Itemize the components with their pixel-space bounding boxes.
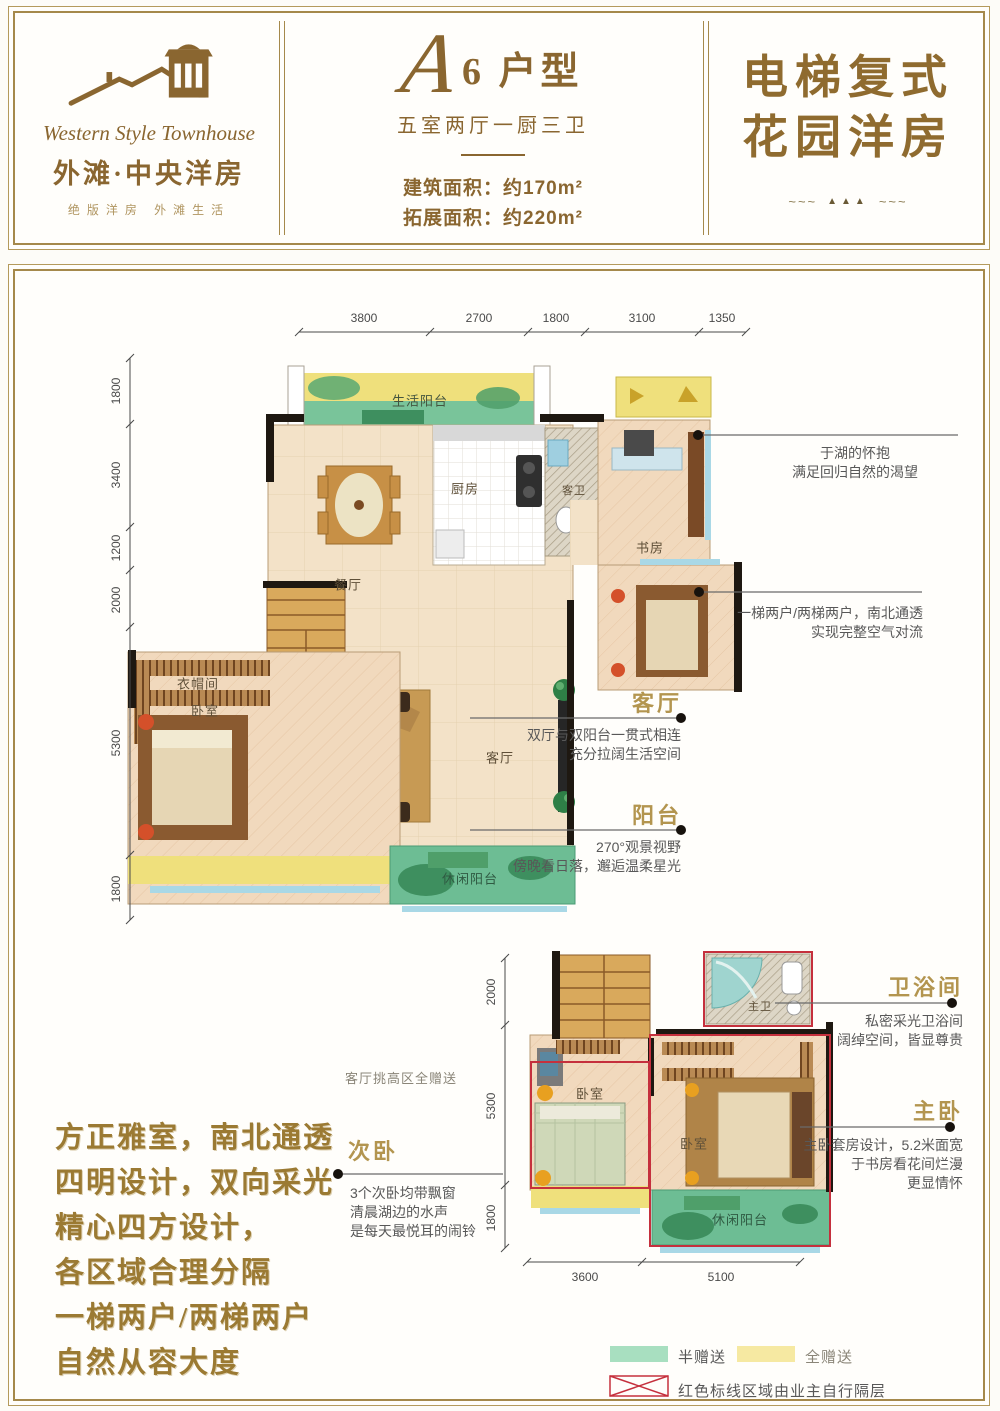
room-label-living: 客厅 — [486, 748, 514, 767]
dim-top-3800: 3800 — [351, 311, 378, 325]
slogan-line4: 各区域合理分隔 — [55, 1251, 334, 1296]
legend-red-label: 红色标线区域由业主自行隔层 — [678, 1380, 886, 1401]
room-label-cloakroom: 衣帽间 — [177, 674, 219, 693]
annotation-secondary: 3个次卧均带飘窗 清晨湖边的水声 是每天最悦耳的闹铃 — [350, 1184, 476, 1241]
annotation-master-title: 主卧 — [913, 1094, 963, 1126]
annotation-living-line2: 充分拉阔生活空间 — [527, 745, 681, 764]
annotation-secondary-line2: 清晨湖边的水声 — [350, 1203, 476, 1222]
annotation-vent-line2: 实现完整空气对流 — [688, 623, 923, 642]
annotation-vent: 一梯两户/两梯两户，南北通透 实现完整空气对流 — [688, 604, 923, 642]
dim-top-1800: 1800 — [543, 311, 570, 325]
annotation-master-line1: 主卧套房设计，5.2米面宽 — [804, 1136, 963, 1155]
legend-full-label: 全赠送 — [805, 1346, 853, 1367]
annotation-balcony: 270°观景视野 傍晚看日落，邂逅温柔星光 — [513, 838, 681, 876]
dim-top-1350: 1350 — [709, 311, 736, 325]
dim-top-3100: 3100 — [629, 311, 656, 325]
dim2-bottom-3600: 3600 — [572, 1270, 599, 1284]
annotation-lake-line1: 于湖的怀抱 — [750, 444, 960, 463]
annotation-bathroom-line1: 私密采光卫浴间 — [837, 1012, 963, 1031]
room-label-guest-bath: 客卫 — [562, 482, 586, 498]
room-label-dining: 餐厅 — [334, 575, 362, 594]
slogan-line6: 自然从容大度 — [55, 1341, 334, 1386]
slogan-line3: 精心四方设计， — [55, 1206, 334, 1251]
annotation-balcony-line1: 270°观景视野 — [513, 838, 681, 857]
dim-left-3400: 3400 — [109, 462, 123, 489]
dim-left-2000: 2000 — [109, 587, 123, 614]
leader-dot — [694, 587, 704, 597]
legend-half-label: 半赠送 — [678, 1346, 726, 1367]
slogan-line2: 四明设计，双向采光 — [55, 1161, 334, 1206]
annotation-vent-line1: 一梯两户/两梯两户，南北通透 — [688, 604, 923, 623]
room-label-kitchen: 厨房 — [451, 479, 479, 498]
dim-left-1800b: 1800 — [109, 876, 123, 903]
room-label-bedroom2-right: 卧室 — [680, 1134, 708, 1153]
slogan-line1: 方正雅室，南北通透 — [55, 1116, 334, 1161]
dim2-left-1800: 1800 — [484, 1205, 498, 1232]
dim-top-2700: 2700 — [466, 311, 493, 325]
annotation-secondary-line1: 3个次卧均带飘窗 — [350, 1184, 476, 1203]
annotation-master-line2: 于书房看花间烂漫 — [804, 1155, 963, 1174]
annotation-master: 主卧套房设计，5.2米面宽 于书房看花间烂漫 更显情怀 — [804, 1136, 963, 1193]
annotation-balcony-line2: 傍晚看日落，邂逅温柔星光 — [513, 857, 681, 876]
poster-page: Western Style Townhouse 外滩·中央洋房 绝版洋房 外滩生… — [0, 0, 1000, 1411]
legend-half-swatch — [610, 1346, 668, 1362]
annotation-master-line3: 更显情怀 — [804, 1174, 963, 1193]
room-label-leisure-balcony1: 休闲阳台 — [442, 869, 498, 888]
annotation-secondary-title: 次卧 — [348, 1134, 398, 1166]
dim-left-1800a: 1800 — [109, 378, 123, 405]
leader-dot — [333, 1169, 343, 1179]
annotation-secondary-line3: 是每天最悦耳的闹铃 — [350, 1222, 476, 1241]
dim2-left-5300: 5300 — [484, 1093, 498, 1120]
room-label-leisure-balcony2: 休闲阳台 — [712, 1210, 768, 1229]
slogan-line5: 一梯两户/两梯两户 — [55, 1296, 334, 1341]
annotation-lake: 于湖的怀抱 满足回归自然的渴望 — [750, 444, 960, 482]
slogan-block: 方正雅室，南北通透 四明设计，双向采光 精心四方设计， 各区域合理分隔 一梯两户… — [55, 1116, 334, 1386]
annotation-lake-line2: 满足回归自然的渴望 — [750, 463, 960, 482]
dim2-bottom-5100: 5100 — [708, 1270, 735, 1284]
annotation-balcony-title: 阳台 — [632, 798, 682, 830]
legend-red-box-icon — [610, 1376, 668, 1396]
annotation-bathroom-title: 卫浴间 — [888, 970, 963, 1002]
annotation-living: 双厅与双阳台一贯式相连 充分拉阔生活空间 — [527, 726, 681, 764]
dim2-left-2000: 2000 — [484, 979, 498, 1006]
leader-dot — [693, 430, 703, 440]
room-label-study: 书房 — [636, 538, 664, 557]
legend-full-swatch — [737, 1346, 795, 1362]
room-label-life-balcony: 生活阳台 — [392, 391, 448, 410]
annotation-bathroom-line2: 阔绰空间，皆显尊贵 — [837, 1031, 963, 1050]
note-double-height: 客厅挑高区全赠送 — [345, 1068, 457, 1087]
dim-left-1200: 1200 — [109, 535, 123, 562]
room-label-master-bath: 主卫 — [748, 998, 772, 1014]
annotation-living-title: 客厅 — [632, 686, 682, 718]
annotation-bathroom: 私密采光卫浴间 阔绰空间，皆显尊贵 — [837, 1012, 963, 1050]
dim-left-5300: 5300 — [109, 730, 123, 757]
room-label-bedroom2-left: 卧室 — [576, 1084, 604, 1103]
annotation-living-line1: 双厅与双阳台一贯式相连 — [527, 726, 681, 745]
room-label-bedroom1: 卧室 — [191, 701, 219, 720]
